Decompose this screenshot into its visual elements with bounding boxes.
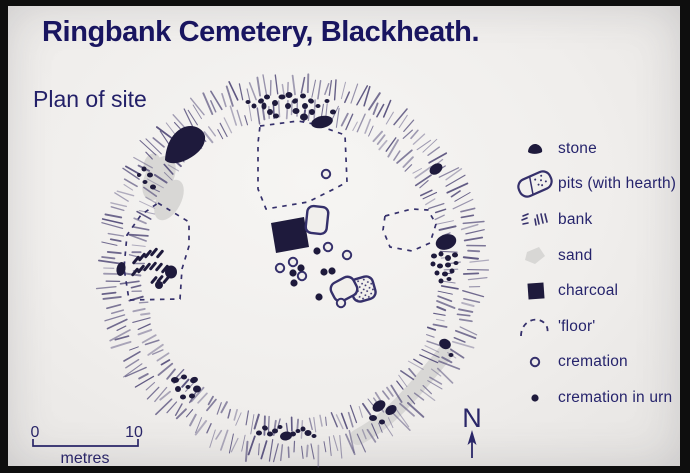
- legend-item-cremation-urn: cremation in urn: [512, 380, 690, 416]
- legend-item-sand: sand: [512, 238, 690, 274]
- legend-label: sand: [558, 247, 592, 265]
- scale-start-label: 0: [31, 424, 40, 441]
- legend-item-stone: stone: [512, 131, 690, 167]
- scale-unit-label: metres: [61, 450, 110, 467]
- legend-label: cremation: [558, 353, 628, 371]
- legend-item-pits: pits (with hearth): [512, 167, 690, 203]
- scale-end-label: 10: [125, 424, 143, 441]
- map-paper: 0 10 metres N Ringbank Cemetery, Blackhe…: [8, 6, 680, 466]
- stone-wedge: [165, 126, 205, 163]
- cremation-symbol-icon: [512, 351, 558, 373]
- stone-symbol-icon: [512, 136, 558, 162]
- legend-label: pits (with hearth): [558, 175, 676, 193]
- north-label: N: [462, 403, 482, 433]
- legend-item-floor: 'floor': [512, 309, 690, 345]
- sand-areas: [135, 150, 445, 437]
- photo-frame: 0 10 metres N Ringbank Cemetery, Blackhe…: [0, 0, 690, 473]
- cremation-urn-symbol-icon: [512, 387, 558, 409]
- legend: stonepits (with hearth)banksandcharcoal'…: [512, 131, 690, 416]
- legend-label: stone: [558, 140, 597, 158]
- scale-bar: 0 10 metres: [31, 424, 143, 467]
- legend-label: charcoal: [558, 282, 618, 300]
- map-title: Ringbank Cemetery, Blackheath.: [42, 16, 479, 49]
- legend-label: 'floor': [558, 318, 595, 336]
- scale-bar-line: [33, 439, 138, 446]
- stone-rows: [133, 249, 168, 282]
- pits-symbol-icon: [512, 167, 558, 201]
- legend-item-cremation: cremation: [512, 345, 690, 381]
- screenshot: 0 10 metres N Ringbank Cemetery, Blackhe…: [0, 0, 690, 473]
- floor-symbol-icon: [512, 312, 558, 342]
- sand-symbol-icon: [512, 242, 558, 270]
- legend-label: bank: [558, 211, 592, 229]
- north-arrow: N: [462, 403, 482, 458]
- charcoal-patch: [271, 217, 309, 253]
- legend-item-charcoal: charcoal: [512, 273, 690, 309]
- map-subtitle: Plan of site: [33, 86, 147, 113]
- pits: [305, 205, 377, 303]
- charcoal-symbol-icon: [512, 278, 558, 304]
- bank-symbol-icon: [512, 207, 558, 233]
- legend-label: cremation in urn: [558, 389, 672, 407]
- legend-item-bank: bank: [512, 202, 690, 238]
